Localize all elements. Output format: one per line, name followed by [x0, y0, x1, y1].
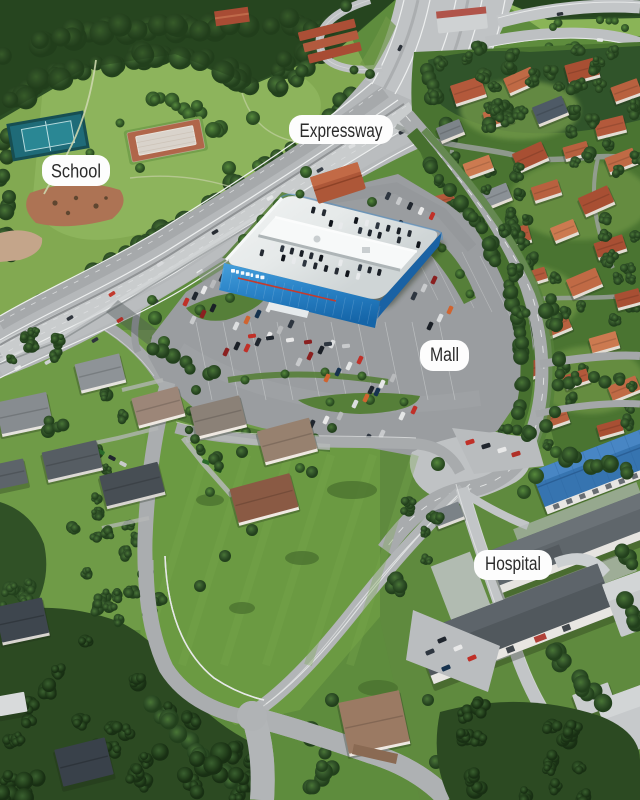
svg-text:Mall: Mall: [430, 345, 459, 366]
svg-text:Hospital: Hospital: [485, 554, 541, 575]
svg-text:School: School: [51, 162, 101, 183]
svg-text:Expressway: Expressway: [300, 121, 383, 142]
